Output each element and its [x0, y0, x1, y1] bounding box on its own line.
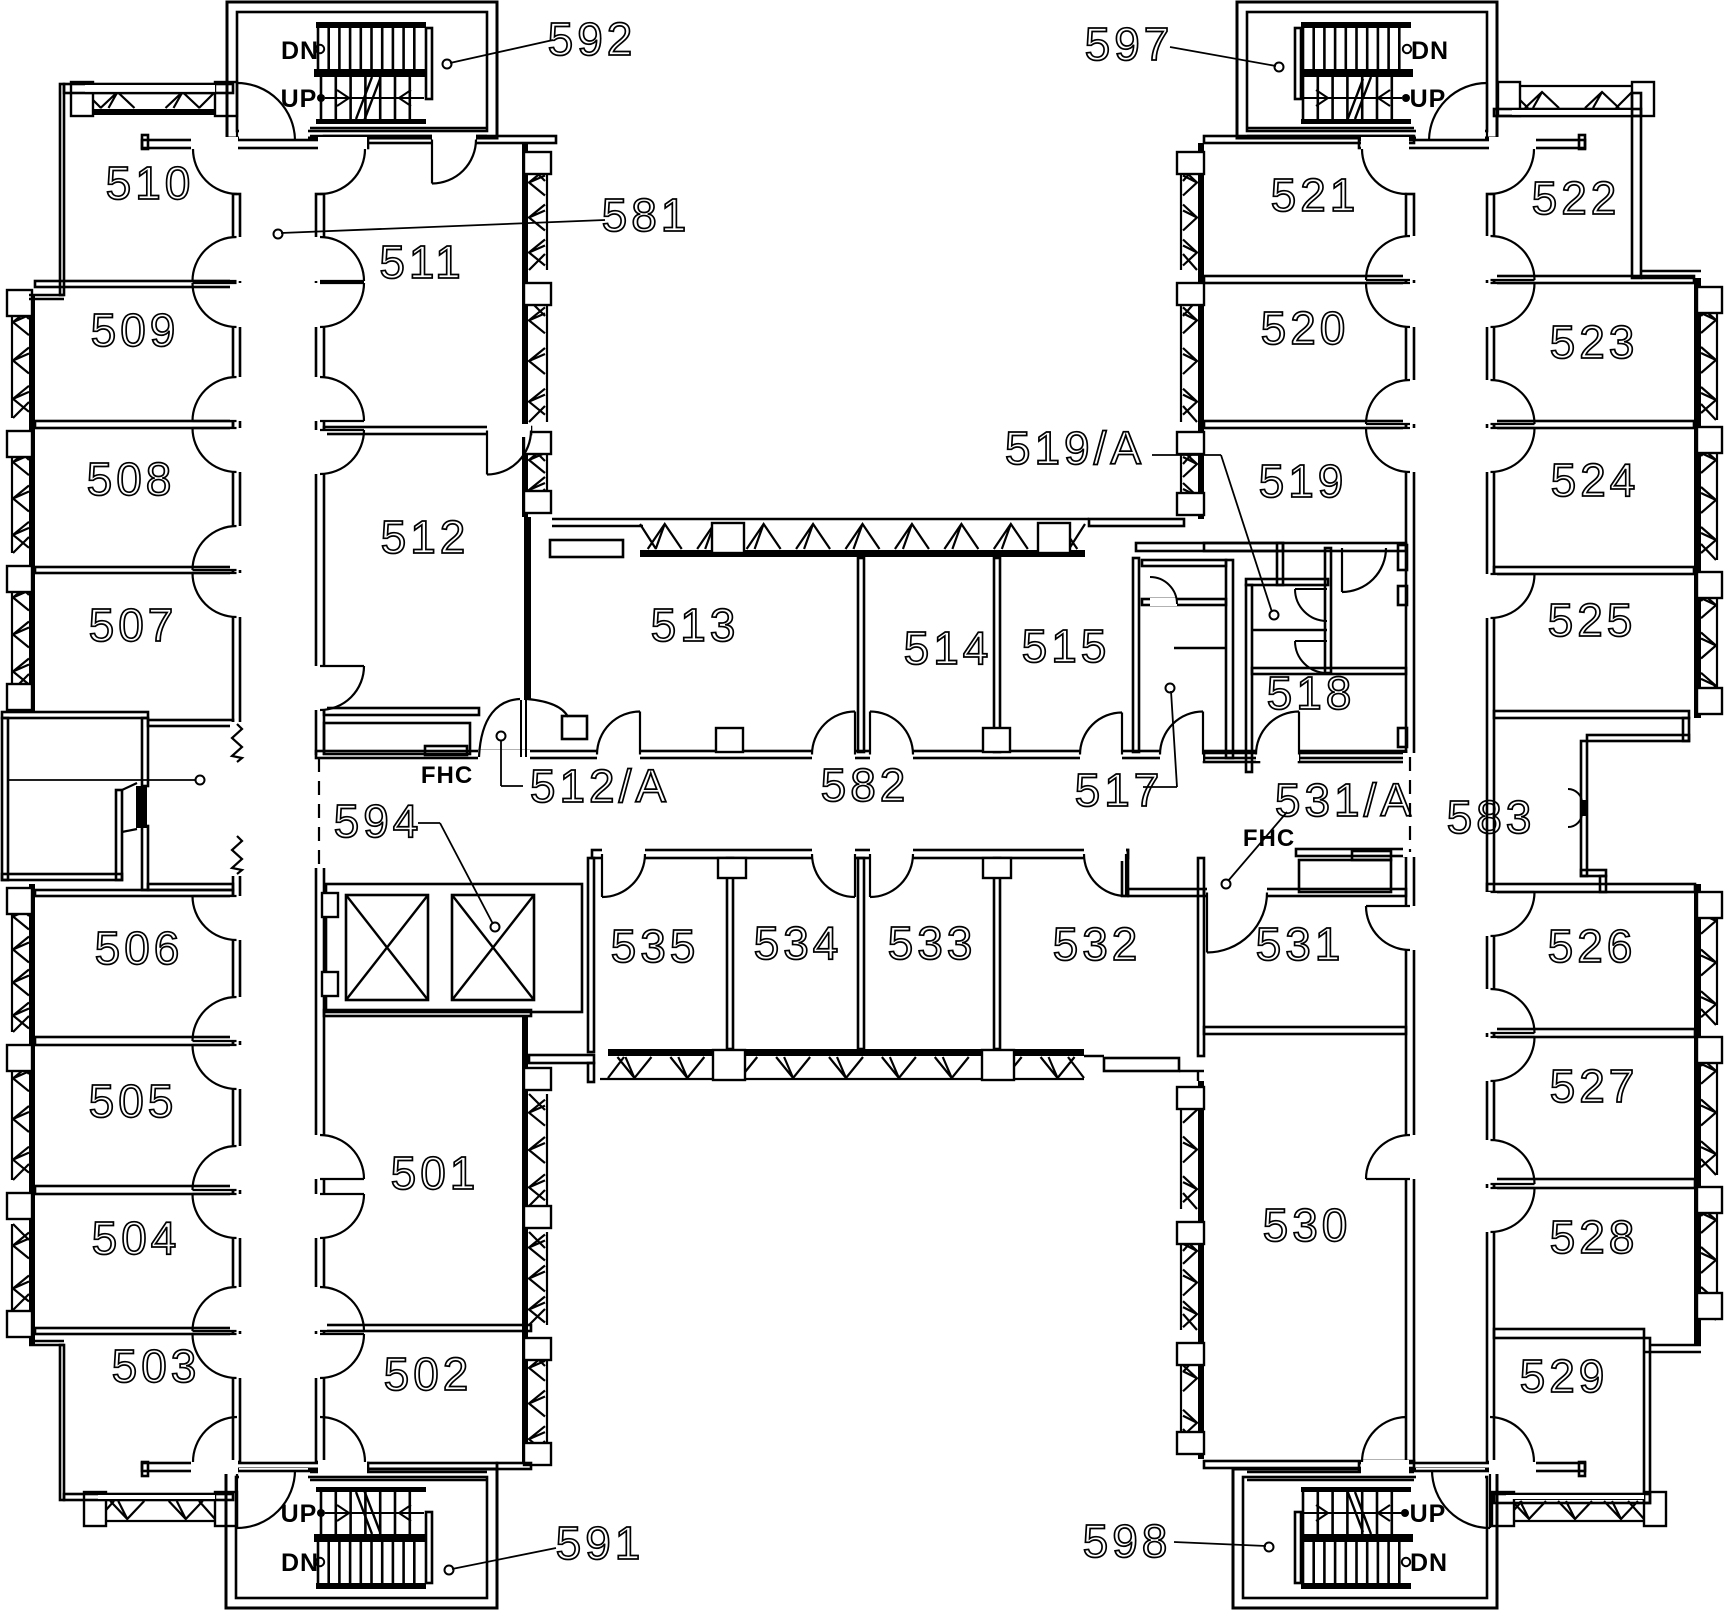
svg-text:512/A: 512/A	[530, 760, 670, 812]
svg-text:597: 597	[1085, 18, 1174, 70]
svg-text:510: 510	[106, 157, 195, 209]
svg-text:505: 505	[89, 1075, 178, 1127]
svg-text:519: 519	[1259, 455, 1348, 507]
svg-text:533: 533	[888, 917, 977, 969]
svg-text:518: 518	[1267, 667, 1356, 719]
svg-text:520: 520	[1261, 302, 1350, 354]
svg-text:535: 535	[611, 920, 700, 972]
svg-text:517: 517	[1075, 764, 1164, 816]
svg-text:521: 521	[1271, 169, 1360, 221]
svg-text:530: 530	[1263, 1199, 1352, 1251]
svg-text:583: 583	[1447, 791, 1536, 843]
svg-text:UP: UP	[1410, 1500, 1447, 1528]
svg-text:DN: DN	[1410, 1549, 1448, 1577]
svg-text:501: 501	[391, 1147, 480, 1199]
svg-text:525: 525	[1548, 594, 1637, 646]
svg-text:522: 522	[1532, 172, 1621, 224]
svg-text:534: 534	[754, 917, 843, 969]
svg-text:UP: UP	[281, 1500, 318, 1528]
svg-text:507: 507	[89, 599, 178, 651]
svg-text:FHC: FHC	[1243, 825, 1295, 852]
svg-text:503: 503	[112, 1340, 201, 1392]
svg-text:DN: DN	[281, 37, 319, 65]
svg-text:524: 524	[1551, 454, 1640, 506]
svg-text:594: 594	[334, 795, 423, 847]
svg-text:526: 526	[1548, 920, 1637, 972]
svg-text:523: 523	[1550, 316, 1639, 368]
svg-text:582: 582	[821, 759, 910, 811]
svg-text:DN: DN	[1411, 37, 1449, 65]
svg-text:DN: DN	[281, 1549, 319, 1577]
svg-text:519/A: 519/A	[1005, 422, 1145, 474]
svg-text:506: 506	[95, 922, 184, 974]
svg-text:531/A: 531/A	[1275, 774, 1415, 826]
svg-text:531: 531	[1256, 918, 1345, 970]
svg-text:508: 508	[87, 453, 176, 505]
svg-text:514: 514	[904, 622, 993, 674]
svg-text:511: 511	[379, 236, 464, 288]
svg-text:FHC: FHC	[421, 762, 473, 789]
svg-text:591: 591	[556, 1517, 645, 1569]
svg-text:532: 532	[1053, 918, 1142, 970]
svg-text:515: 515	[1022, 620, 1111, 672]
svg-text:528: 528	[1550, 1211, 1639, 1263]
svg-text:513: 513	[651, 599, 740, 651]
svg-text:509: 509	[91, 304, 180, 356]
svg-text:502: 502	[384, 1348, 473, 1400]
svg-text:598: 598	[1083, 1515, 1172, 1567]
svg-text:581: 581	[602, 189, 691, 241]
svg-text:504: 504	[92, 1212, 181, 1264]
svg-text:529: 529	[1520, 1350, 1609, 1402]
svg-text:527: 527	[1550, 1060, 1639, 1112]
svg-text:592: 592	[548, 13, 637, 65]
svg-text:UP: UP	[1410, 85, 1447, 113]
svg-text:512: 512	[381, 511, 470, 563]
